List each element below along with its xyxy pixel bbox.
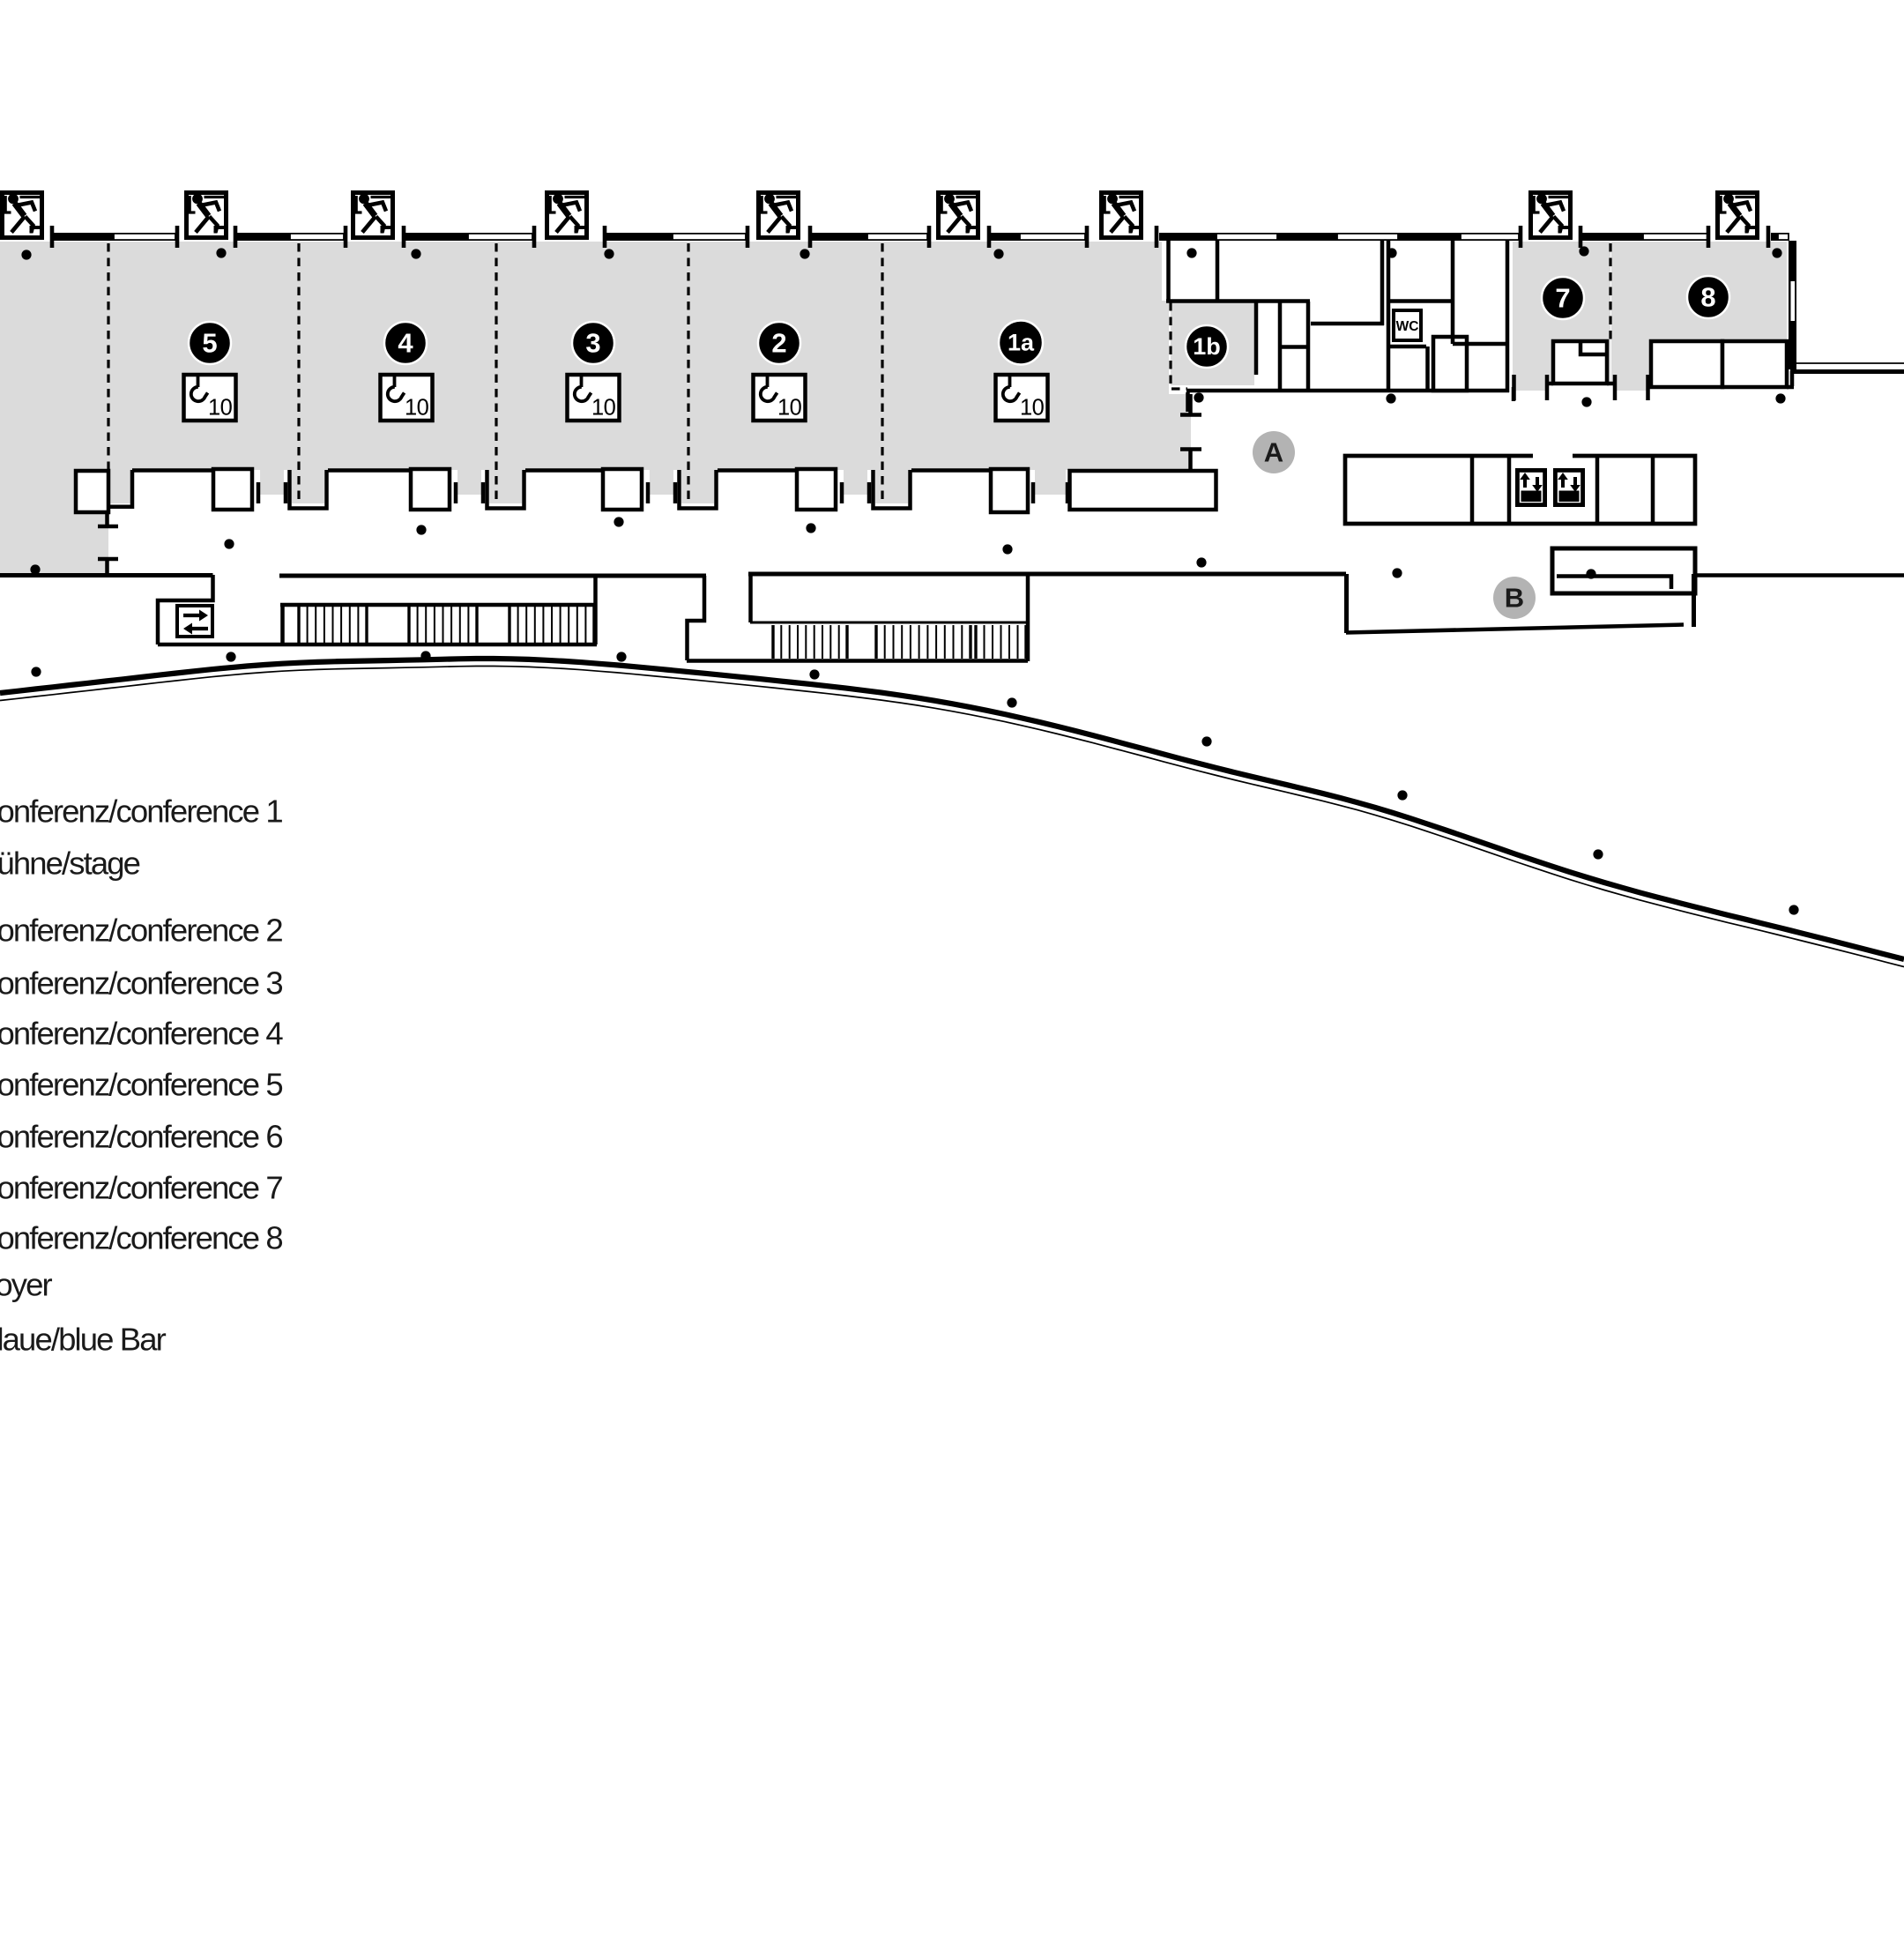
svg-text:A: A	[1264, 437, 1283, 468]
svg-text:5: 5	[202, 328, 217, 359]
svg-text:Bühne/stage: Bühne/stage	[0, 846, 140, 882]
svg-text:Blaue/blue Bar: Blaue/blue Bar	[0, 1322, 167, 1358]
svg-text:Konferenz/conference 4: Konferenz/conference 4	[0, 1016, 283, 1052]
svg-text:Konferenz/conference 8: Konferenz/conference 8	[0, 1220, 282, 1256]
svg-text:1a: 1a	[1008, 330, 1035, 356]
svg-text:Konferenz/conference 3: Konferenz/conference 3	[0, 965, 282, 1002]
svg-text:2: 2	[771, 328, 786, 359]
svg-text:7: 7	[1555, 283, 1570, 314]
svg-text:Foyer: Foyer	[0, 1267, 53, 1303]
svg-text:1b: 1b	[1193, 333, 1221, 360]
svg-text:B: B	[1505, 583, 1524, 614]
svg-text:4: 4	[398, 328, 413, 359]
svg-text:Konferenz/conference 2: Konferenz/conference 2	[0, 913, 282, 949]
svg-text:Konferenz/conference 1: Konferenz/conference 1	[0, 793, 282, 830]
svg-text:8: 8	[1700, 282, 1715, 313]
svg-text:3: 3	[585, 328, 600, 359]
svg-text:Konferenz/conference 6: Konferenz/conference 6	[0, 1119, 282, 1155]
svg-text:WC: WC	[1396, 319, 1419, 334]
svg-text:Konferenz/conference 7: Konferenz/conference 7	[0, 1170, 282, 1206]
svg-text:Konferenz/conference 5: Konferenz/conference 5	[0, 1067, 282, 1103]
